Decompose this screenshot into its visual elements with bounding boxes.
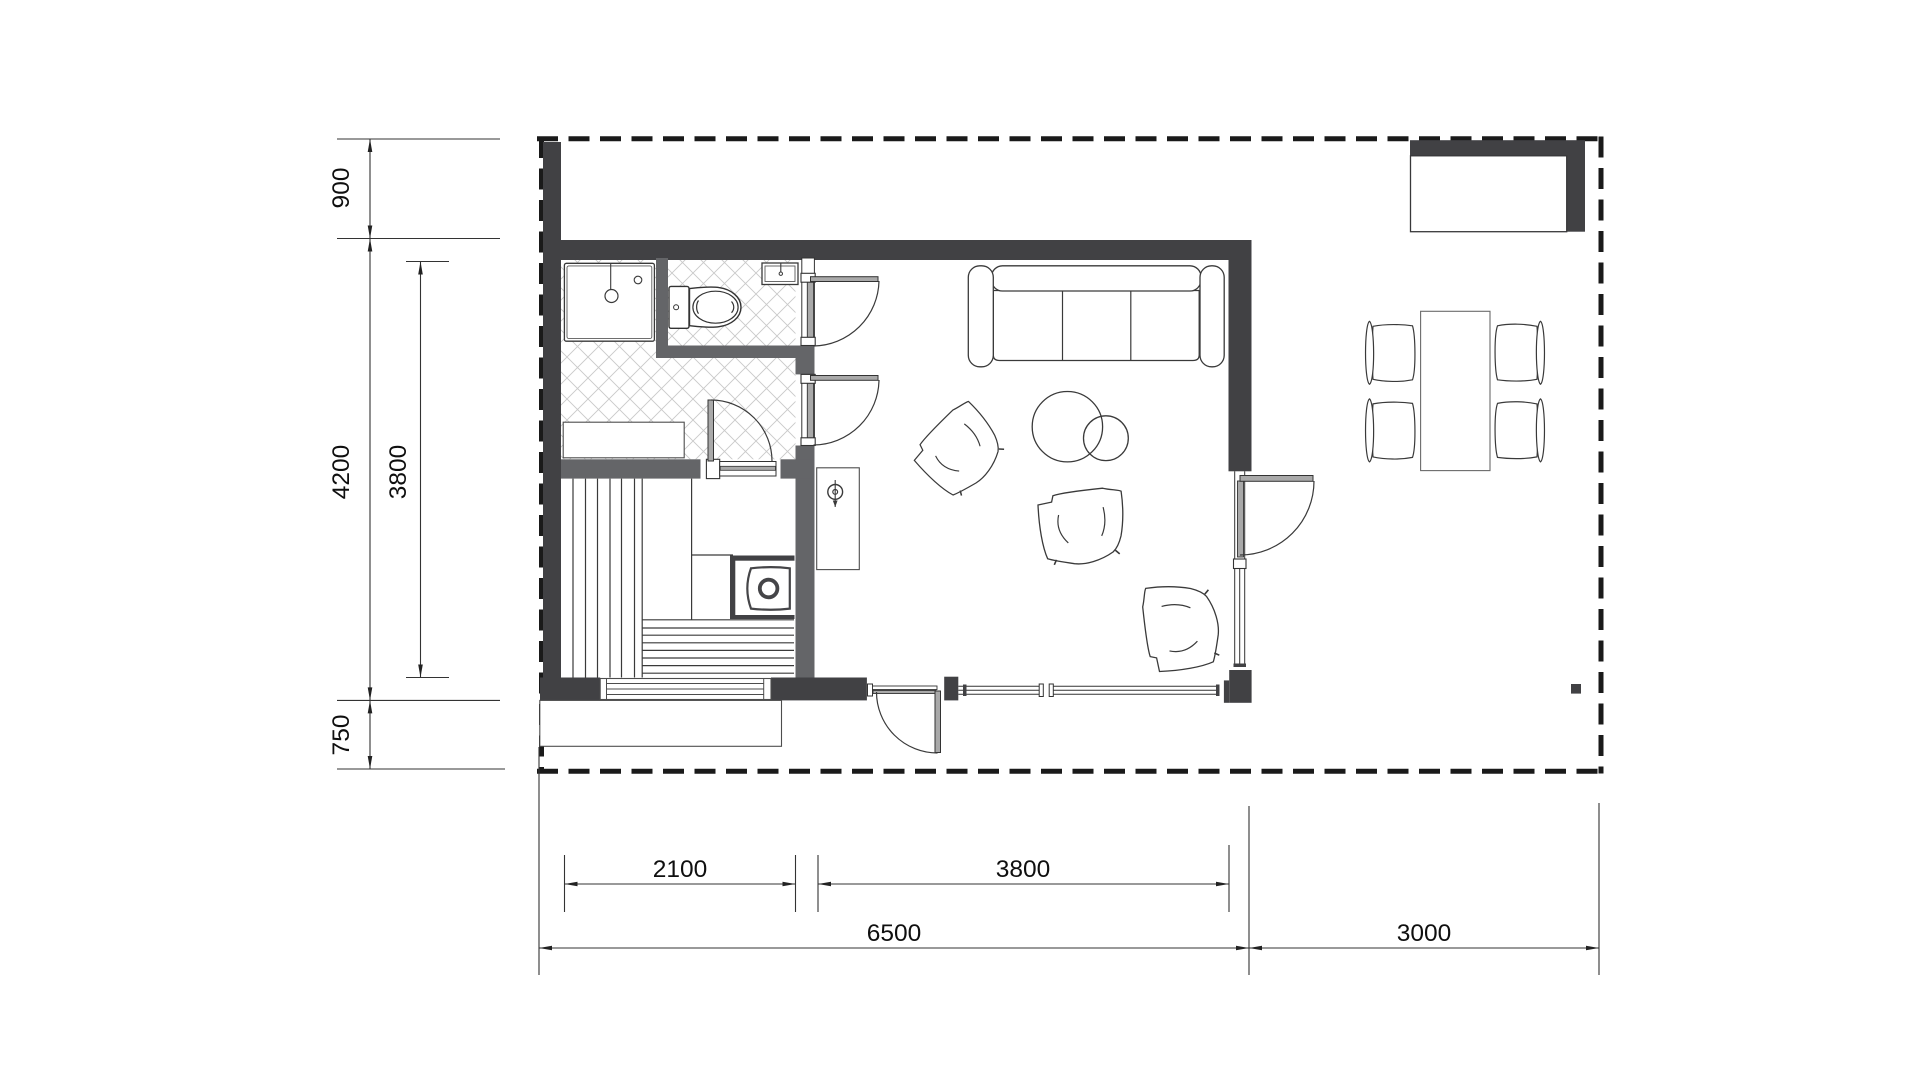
svg-text:3800: 3800 (996, 856, 1051, 883)
svg-text:3800: 3800 (385, 445, 412, 500)
svg-text:900: 900 (328, 168, 355, 209)
svg-text:6500: 6500 (867, 920, 922, 947)
svg-text:3000: 3000 (1397, 920, 1452, 947)
svg-text:2100: 2100 (653, 856, 708, 883)
svg-text:750: 750 (328, 715, 355, 756)
svg-text:4200: 4200 (328, 445, 355, 500)
